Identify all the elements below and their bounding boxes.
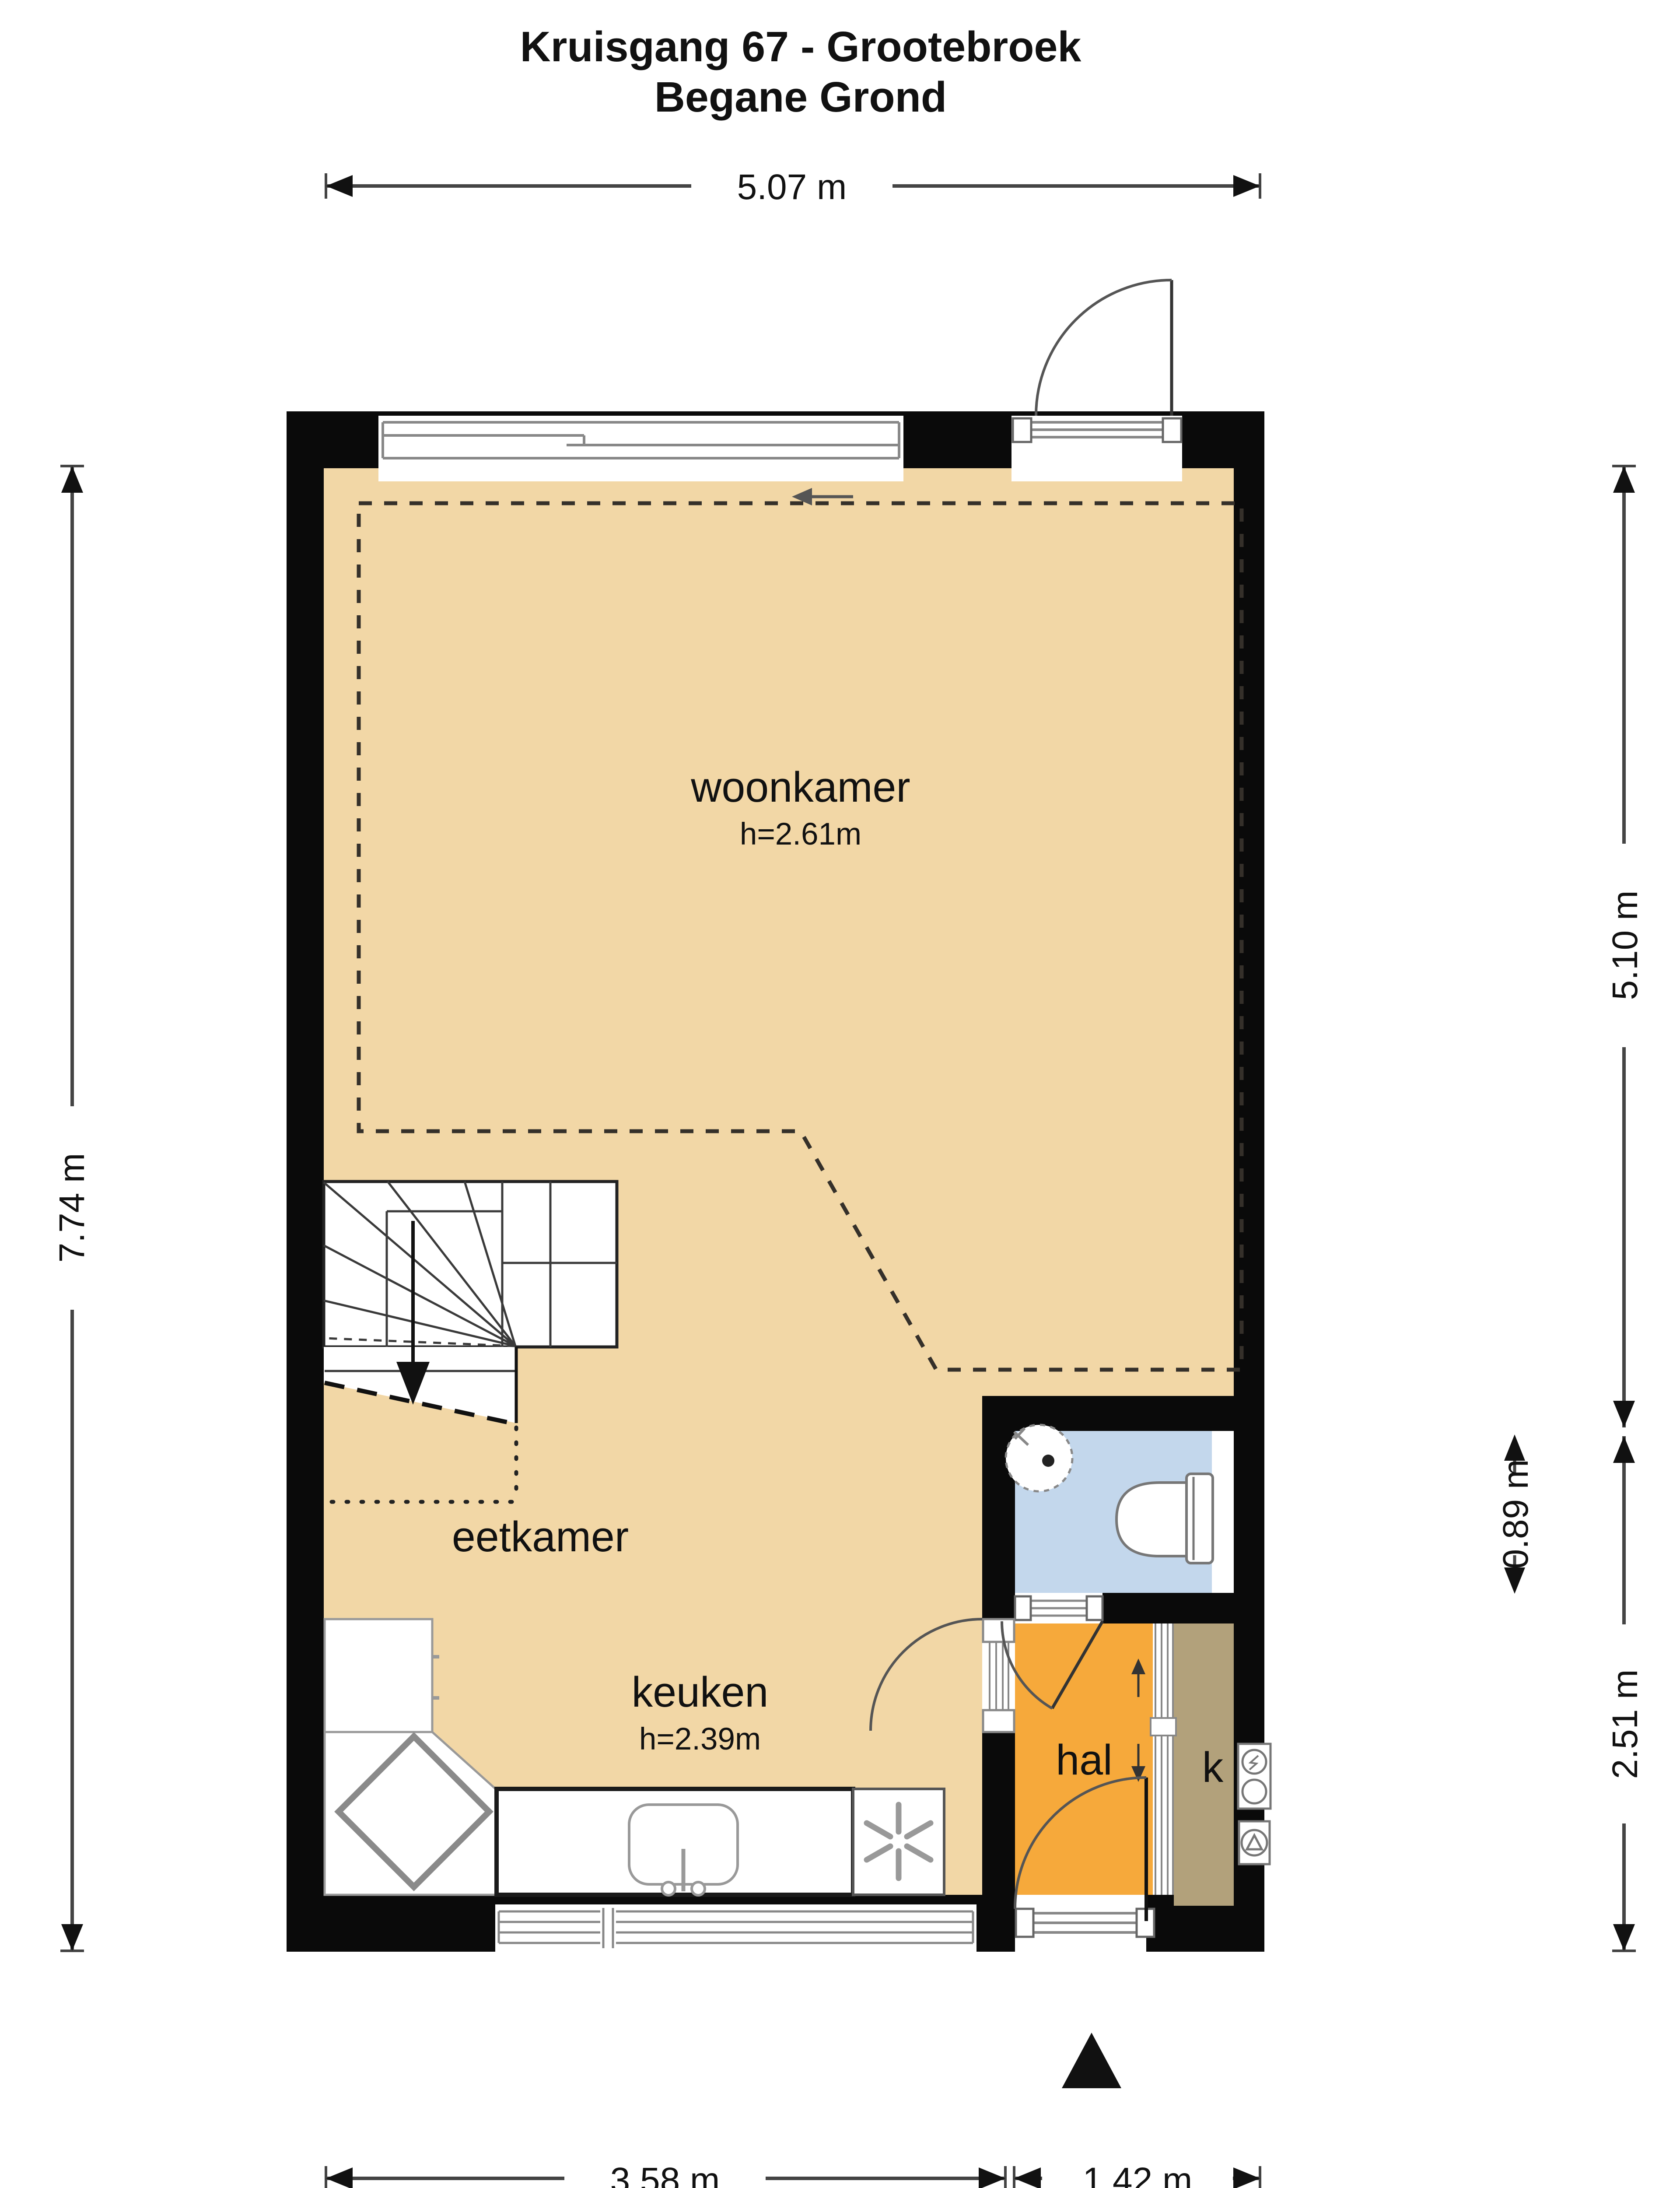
ceiling-height-woonkamer: h=2.61m <box>740 817 861 852</box>
dimension-right-toilet: 0.89 m <box>1496 1434 1536 1594</box>
dimension-right-upper-label: 5.10 m <box>1605 891 1645 1000</box>
arrow-right-icon <box>1233 2167 1260 2188</box>
dimension-top-width: 5.07 m <box>326 154 1260 216</box>
arrow-down-icon <box>1613 1401 1635 1427</box>
dimension-bottom-right: 1.42 m <box>1014 2148 1260 2188</box>
dimension-bottom-left: 3.58 m <box>326 2148 1005 2188</box>
toilet-bowl <box>1116 1483 1186 1556</box>
dimension-bottom-right-label: 1.42 m <box>1083 2160 1193 2188</box>
arrow-left-icon <box>326 2167 353 2188</box>
floorplan-canvas: Kruisgang 67 - Grootebroek Begane Grond … <box>0 0 1680 2188</box>
arrow-up-icon <box>61 466 83 493</box>
arrow-right-icon <box>1233 175 1260 197</box>
dimension-bottom-left-label: 3.58 m <box>610 2160 720 2188</box>
arrow-up-icon <box>1504 1434 1525 1461</box>
arrow-up-icon <box>1613 466 1635 493</box>
washbasin-drain-icon <box>1042 1455 1054 1467</box>
room-label-hal: hal <box>1056 1736 1112 1784</box>
ceiling-height-keuken: h=2.39m <box>639 1722 761 1757</box>
dimension-left-height: 7.74 m <box>38 466 105 1951</box>
arrow-down-icon <box>1504 1567 1525 1594</box>
dimension-right-lower-label: 2.51 m <box>1605 1669 1645 1779</box>
entrance-marker-icon <box>1062 2033 1121 2088</box>
dimension-right-toilet-label: 0.89 m <box>1496 1459 1536 1569</box>
dimension-left-height-label: 7.74 m <box>52 1153 92 1263</box>
arrow-right-icon <box>979 2167 1005 2188</box>
room-label-keuken: keuken <box>632 1668 769 1716</box>
room-label-eetkamer: eetkamer <box>452 1513 629 1560</box>
kitchen-window-bottom <box>495 1904 976 1953</box>
arrow-left-icon <box>326 175 353 197</box>
kitchen-counter-left <box>325 1619 432 1732</box>
page-title-line2: Begane Grond <box>654 73 947 121</box>
meter-cabinet <box>1238 1744 1270 1864</box>
dimension-right-lower: 2.51 m <box>1590 1436 1658 1951</box>
door-swing-arc <box>1036 280 1172 416</box>
arrow-down-icon <box>61 1924 83 1951</box>
room-label-woonkamer: woonkamer <box>690 763 910 811</box>
page-title-line1: Kruisgang 67 - Grootebroek <box>520 23 1082 70</box>
arrow-up-icon <box>1613 1436 1635 1463</box>
front-door-top <box>1011 280 1182 481</box>
arrow-left-icon <box>1014 2167 1041 2188</box>
dimension-top-width-label: 5.07 m <box>737 167 847 207</box>
dimension-right-upper: 5.10 m <box>1590 466 1658 1427</box>
room-label-kast: k <box>1202 1743 1224 1791</box>
toilet-cistern <box>1186 1474 1213 1563</box>
arrow-down-icon <box>1613 1924 1635 1951</box>
